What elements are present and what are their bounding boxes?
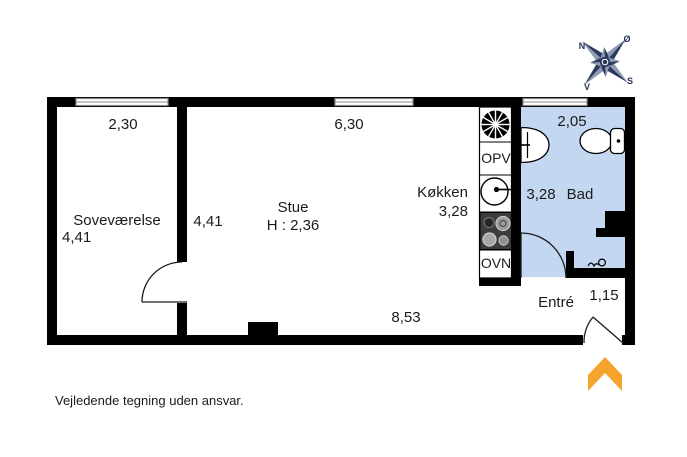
toilet-icon: [580, 129, 625, 154]
stove-icon: [480, 213, 512, 250]
bedroom-partition-upper: [177, 107, 187, 262]
livingroom-depth-dim: 4,41: [186, 213, 230, 230]
kitchen-strip: [480, 107, 512, 278]
livingroom-length-dim: 8,53: [382, 309, 430, 326]
livingroom-label: Stue: [263, 199, 323, 216]
compass-east-label: Ø: [621, 33, 633, 45]
kitchen-counter-end-wall: [479, 278, 521, 286]
compass-rose-icon: [561, 18, 649, 106]
bedroom-door: [142, 262, 187, 302]
chimney-block: [248, 322, 278, 336]
bath-door-jamb: [566, 251, 574, 269]
bedroom-partition-lower: [177, 303, 187, 336]
compass-west-label: V: [581, 81, 593, 93]
entrance-arrow-icon: [588, 357, 622, 391]
bathroom-window-dim: 2,05: [547, 113, 597, 130]
livingroom-window-dim: 6,30: [324, 116, 374, 133]
ceiling-height-label: H : 2,36: [250, 217, 336, 234]
entrance-door-dim: 1,15: [582, 287, 626, 304]
bath-pillar-foot: [596, 228, 625, 237]
livingroom-window: [335, 99, 413, 106]
bedroom-label: Soveværelse: [55, 212, 179, 229]
bathroom-window: [523, 99, 587, 106]
bathroom-label: Bad: [560, 186, 600, 203]
floor-plan-page: 2,30 Soveværelse 4,41 4,41 6,30 Stue H :…: [0, 0, 687, 457]
dishwasher-label: OPV: [479, 151, 513, 166]
entrance-label: Entré: [528, 294, 584, 311]
bathroom-depth-dim: 3,28: [520, 186, 562, 203]
kitchen-label: Køkken: [404, 184, 468, 201]
bedroom-width-dim: 2,30: [98, 116, 148, 133]
kitchen-depth-dim: 3,28: [424, 203, 468, 220]
disclaimer-text: Vejledende tegning uden ansvar.: [55, 393, 244, 408]
compass-north-label: N: [576, 40, 588, 52]
bath-bottom-wall: [566, 268, 625, 278]
bedroom-window: [76, 99, 168, 106]
bedroom-depth-dim: 4,41: [62, 229, 112, 246]
extractor-fan-icon: [482, 111, 510, 139]
oven-label: OVN: [479, 256, 513, 271]
compass-south-label: S: [624, 75, 636, 87]
